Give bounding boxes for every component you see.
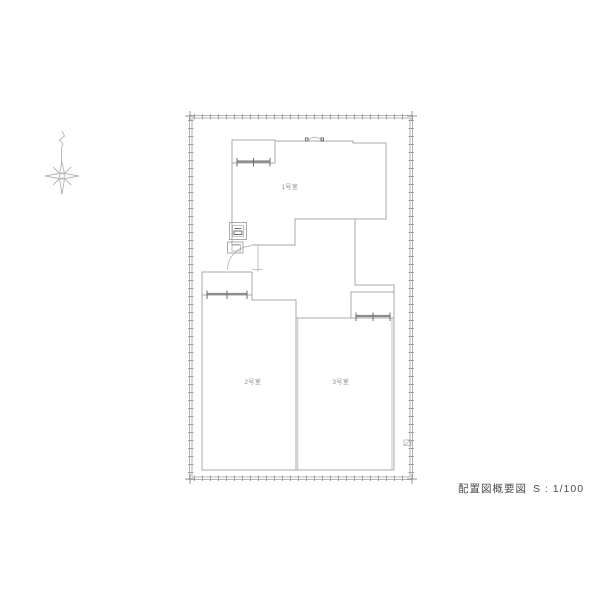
vent-arc (306, 137, 324, 141)
site-plan-page: 1号室 2号室 (0, 0, 600, 600)
building-room-1: 1号室 (228, 137, 387, 272)
boundary-corner-marks (185, 111, 417, 484)
window-room-3 (356, 313, 390, 322)
building-room-3: 3号室 (296, 219, 394, 470)
site-boundary-fence (185, 111, 417, 484)
site-plan-canvas: 1号室 2号室 (0, 0, 600, 600)
building-room-2: 2号室 (202, 272, 296, 470)
room-label: 3号室 (333, 378, 350, 386)
connector-wall (355, 219, 394, 292)
entrance-door-arc (228, 246, 263, 270)
window-room-1 (237, 158, 270, 167)
room-label: 1号室 (282, 183, 299, 191)
meter-box (228, 242, 244, 253)
scale-label: S : 1/100 (533, 483, 584, 495)
north-arrow-icon (45, 131, 79, 194)
room-label: 2号室 (245, 378, 262, 386)
title-block: 配置図概要図 S : 1/100 (458, 482, 584, 495)
drawing-title: 配置図概要図 (458, 482, 527, 495)
window-room-2 (207, 291, 247, 300)
